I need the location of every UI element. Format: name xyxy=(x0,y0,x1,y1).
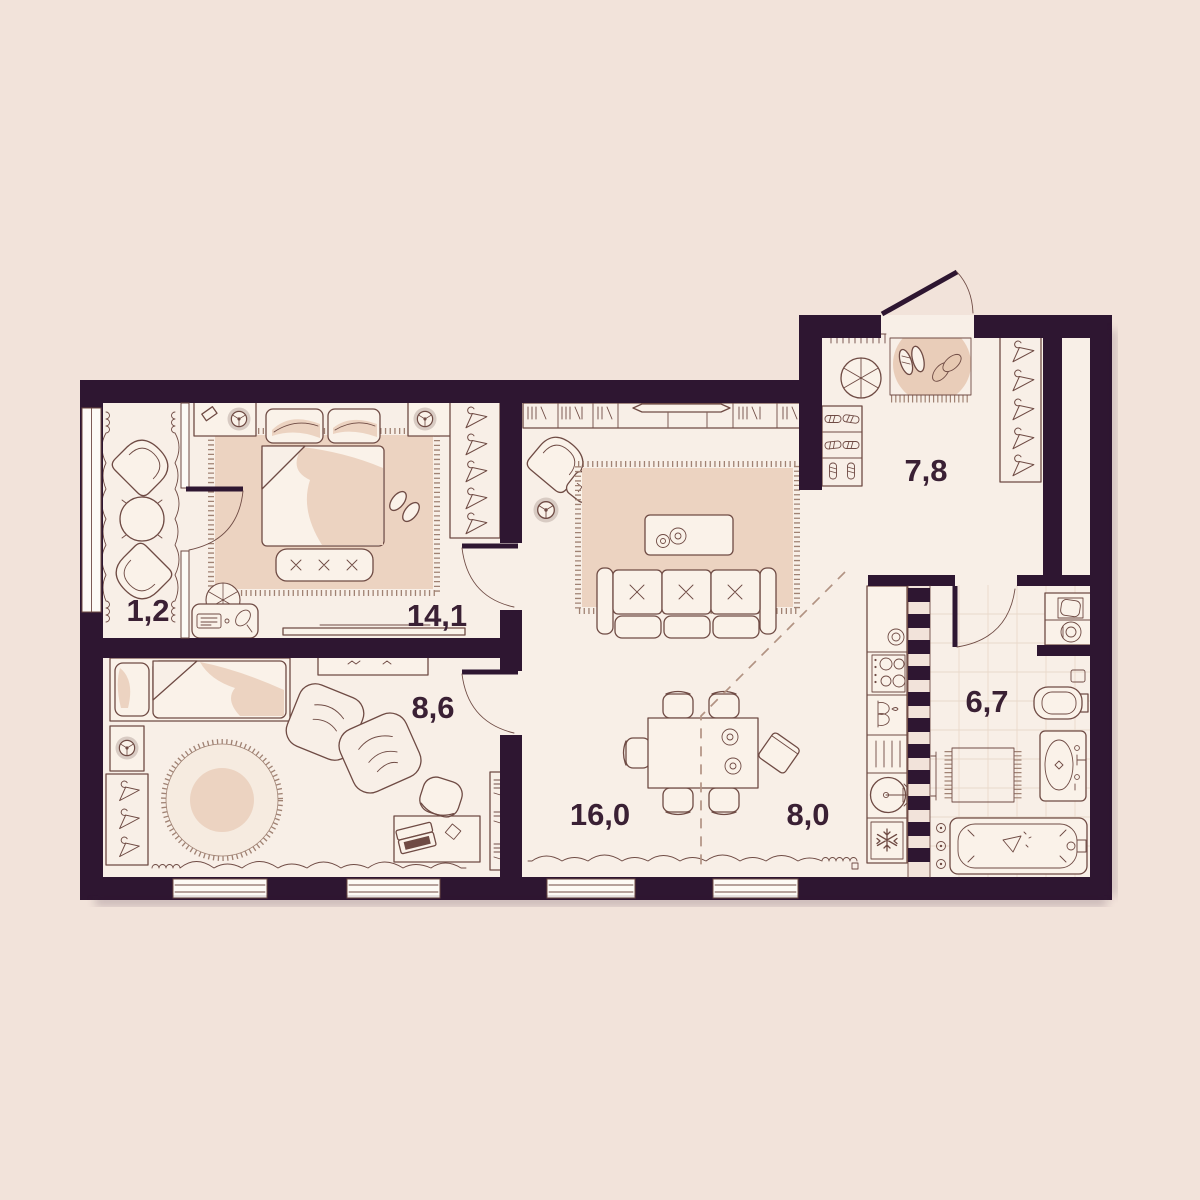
bathtub xyxy=(950,818,1087,874)
area-label-hallway: 7,8 xyxy=(904,453,947,488)
bed-bench xyxy=(276,549,373,581)
area-label-bedroom: 14,1 xyxy=(407,598,467,633)
shaft-wall xyxy=(908,586,930,877)
area-label-bathroom: 6,7 xyxy=(965,684,1008,719)
coat-rack xyxy=(1000,334,1041,482)
area-label-living-room: 16,0 xyxy=(570,797,630,832)
shoe-cabinet xyxy=(822,406,862,486)
entry-threshold xyxy=(881,315,974,340)
double-bed xyxy=(262,409,384,546)
dresser xyxy=(192,604,258,638)
kids-wardrobe xyxy=(106,774,148,865)
window xyxy=(547,879,635,898)
floor-plan-drawing: 1,2 14,1 8,6 16,0 8,0 7,8 6,7 xyxy=(0,0,1200,1200)
bathroom-sink xyxy=(1040,731,1086,801)
area-label-kitchen: 8,0 xyxy=(786,797,829,832)
window xyxy=(173,879,267,898)
coffee-table xyxy=(645,515,733,555)
lamp-table xyxy=(110,726,144,771)
kitchen-counter xyxy=(867,586,907,863)
area-label-balcony: 1,2 xyxy=(126,593,169,628)
tv xyxy=(633,404,730,412)
balcony-window xyxy=(82,408,101,612)
media-wall xyxy=(523,403,817,428)
area-label-kids-room: 8,6 xyxy=(411,690,454,725)
nightstand xyxy=(194,402,256,436)
shelf xyxy=(318,656,428,675)
desk xyxy=(394,816,480,862)
floor-lamp xyxy=(534,498,559,523)
bedroom-wardrobe xyxy=(450,402,500,538)
washer-dryer-stack xyxy=(1045,593,1092,645)
single-bed xyxy=(110,658,290,721)
balcony-table xyxy=(120,497,164,541)
sofa xyxy=(597,568,776,638)
pouf xyxy=(841,358,881,398)
window xyxy=(347,879,440,898)
floor-plan-page: 1,2 14,1 8,6 16,0 8,0 7,8 6,7 xyxy=(0,0,1200,1200)
window xyxy=(713,879,798,898)
entry-door xyxy=(882,272,973,314)
